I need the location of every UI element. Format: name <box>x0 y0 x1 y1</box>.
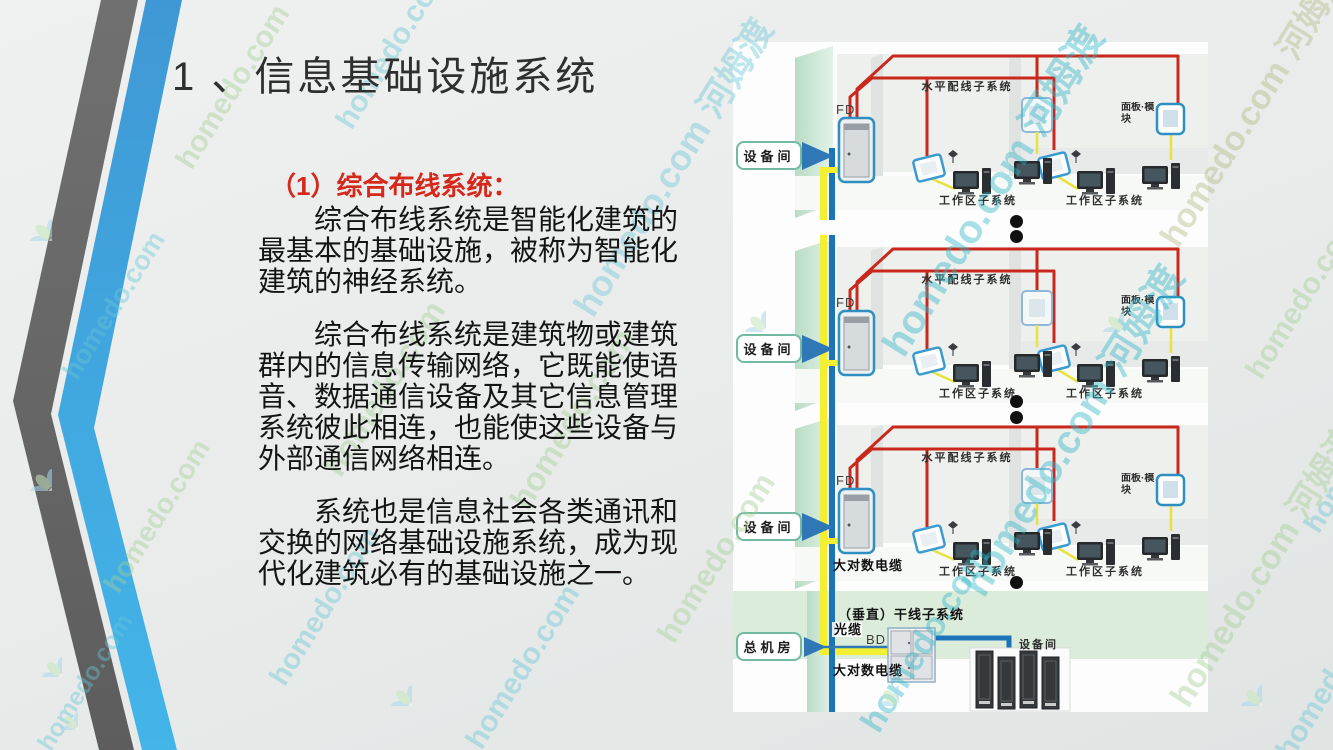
fd-cabinet <box>839 118 874 182</box>
fd-cabinet <box>839 489 874 553</box>
paragraph: 系统也是信息社会各类通讯和交换的网络基础设施系统，成为现代化建筑必有的基础设施之… <box>258 496 700 589</box>
trunk-fiber-line <box>820 167 827 220</box>
main-room-box: 总机房 <box>737 633 801 660</box>
trunk-copper-line <box>829 148 835 220</box>
ellipsis-dot <box>1010 576 1023 589</box>
floor-section: FD 设备间 水平配线子系统 工作区子系统 工作区子系统 <box>733 235 1208 413</box>
bd-label: BD <box>866 632 886 647</box>
panel-module-outlet <box>1157 475 1184 505</box>
wall-outlet <box>1022 469 1052 503</box>
fd-label: FD <box>836 102 855 117</box>
equipment-room-bottom-label: 设备间 <box>1019 637 1058 651</box>
panel-module-outlet <box>1157 297 1184 327</box>
floor-section: FD 设备间 水平配线子系统 工作区子系统 工作区子系统 <box>733 413 1208 591</box>
workarea-subsystem-label: 工作区子系统 <box>1066 386 1144 400</box>
panel-module-label: 面板·模块 <box>1121 473 1159 497</box>
flower-logo-icon <box>368 662 412 711</box>
body-text: 综合布线系统是智能化建筑的最基本的基础设施，被称为智能化建筑的神经系统。 综合布… <box>258 204 700 611</box>
workarea-subsystem-label: 工作区子系统 <box>1066 193 1144 207</box>
trunk-fiber-line <box>820 235 827 413</box>
fiber-cable-label: 光缆 <box>833 622 862 637</box>
riser-subsystem-label: （垂直）干线子系统 <box>838 607 964 622</box>
basement-section: （垂直）干线子系统 光缆 BD 大对数电缆 设备间 总机房 <box>733 591 1208 712</box>
trunk-fiber-line <box>820 413 827 591</box>
copper-cable-label: 大对数电缆 <box>833 558 903 573</box>
watermark-text: homedo.com <box>1269 589 1333 750</box>
horizontal-subsystem-label: 水平配线子系统 <box>922 450 1013 464</box>
wall-outlet <box>1022 291 1052 325</box>
server-rack <box>1042 657 1059 709</box>
equipment-room-box: 设备间 <box>737 142 801 169</box>
ellipsis-dot <box>1010 411 1023 424</box>
floor-diagram: FD 设备间 水平配线子系统 工作区子系统 工作区子系统 <box>733 235 1208 413</box>
fd-label: FD <box>836 295 855 310</box>
equipment-room-label: 设备间 <box>743 520 794 535</box>
panel-module-label: 面板·模块 <box>1121 295 1159 319</box>
floor-diagram: FD 设备间 水平配线子系统 工作区子系统 工作区子系统 <box>733 42 1208 220</box>
slide-title: 1 、信息基础设施系统 <box>172 44 598 102</box>
horizontal-subsystem-label: 水平配线子系统 <box>922 272 1013 286</box>
workarea-subsystem-label: 工作区子系统 <box>939 193 1017 207</box>
workarea-subsystem-label: 工作区子系统 <box>939 386 1017 400</box>
paragraph: 综合布线系统是建筑物或建筑群内的信息传输网络，它既能使语音、数据通信设备及其它信… <box>258 319 700 474</box>
trunk-fiber-line <box>820 591 827 655</box>
ellipsis-dot <box>1010 215 1023 228</box>
cabling-diagram: FD 设备间 水平配线子系统 工作区子系统 工作区子系统 <box>733 42 1208 712</box>
section-heading: （1）综合布线系统： <box>270 166 518 203</box>
corner-ribbon <box>0 0 220 750</box>
ellipsis-dot <box>1010 230 1023 243</box>
trunk-copper-line <box>829 591 835 712</box>
panel-module-label: 面板·模块 <box>1121 102 1159 126</box>
fd-cabinet <box>839 311 874 375</box>
copper-cable-label: 大对数电缆 <box>833 663 903 678</box>
equipment-room-box: 设备间 <box>737 335 801 362</box>
main-room-label: 总机房 <box>743 640 794 655</box>
equipment-room-label: 设备间 <box>743 149 794 164</box>
slide: 1 、信息基础设施系统 （1）综合布线系统： 综合布线系统是智能化建筑的最基本的… <box>0 0 1333 750</box>
paragraph: 综合布线系统是智能化建筑的最基本的基础设施，被称为智能化建筑的神经系统。 <box>258 204 700 297</box>
wall-outlet <box>1022 98 1052 132</box>
floor-section: FD 设备间 水平配线子系统 工作区子系统 工作区子系统 <box>733 42 1208 220</box>
server-racks <box>970 648 1070 711</box>
server-rack <box>998 657 1015 709</box>
ellipsis-dot <box>1010 395 1023 408</box>
watermark-text: homedo.com <box>1297 374 1333 539</box>
workarea-subsystem-label: 工作区子系统 <box>1066 564 1144 578</box>
watermark-text: homedo.com <box>1239 209 1333 385</box>
floor-diagram: FD 设备间 水平配线子系统 工作区子系统 工作区子系统 <box>733 413 1208 591</box>
fd-label: FD <box>836 473 855 488</box>
trunk-copper-line <box>829 235 835 413</box>
horizontal-subsystem-label: 水平配线子系统 <box>922 79 1013 93</box>
flower-logo-icon <box>1218 662 1262 711</box>
server-rack <box>976 651 993 708</box>
panel-module-outlet <box>1157 104 1184 134</box>
server-rack <box>1020 651 1037 708</box>
workarea-subsystem-label: 工作区子系统 <box>939 564 1017 578</box>
equipment-room-label: 设备间 <box>743 342 794 357</box>
equipment-room-box: 设备间 <box>737 513 801 540</box>
